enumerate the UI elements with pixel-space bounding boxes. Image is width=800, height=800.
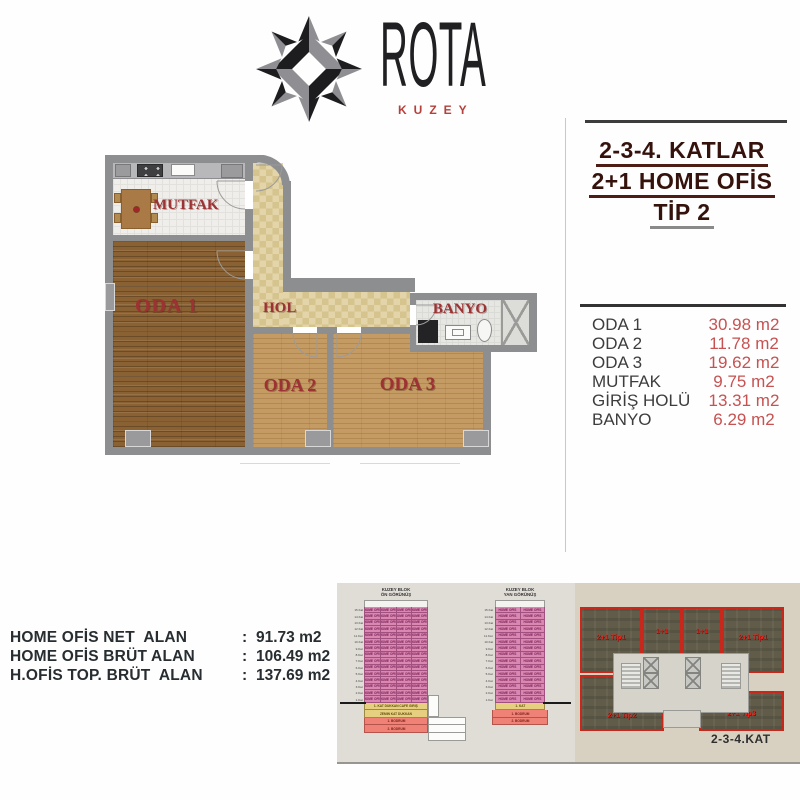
cell-label: HOME OFİS [412,666,427,669]
title-line-floors: 2-3-4. KATLAR [596,138,768,167]
room-label-oda3: ODA 3 [345,374,470,396]
elevation-floor-cell: HOME OFİS [412,633,427,638]
area-table-row: BANYO6.29 m2 [592,410,788,429]
elevation-floor-cell: HOME OFİS [521,626,545,631]
floor-level-text: 11.Kat [484,634,493,637]
key-plan-caption: 2-3-4.KAT [711,732,771,746]
cell-label: HOME OFİS [381,653,397,656]
front-elevation-title: KUZEY BLOK ÖN GÖRÜNÜŞ [356,587,436,601]
cell-label: HOME OFİS [412,646,427,649]
elevator-icon [685,673,701,689]
summary-row: HOME OFİS BRÜT ALAN:106.49 m2 [10,647,350,666]
elevation-floor-cell: HOME OFİS [521,613,545,618]
area-room-value: 30.98 m2 [700,315,788,335]
cell-label: HOME OFİS [523,678,541,681]
area-room-label: ODA 1 [592,315,700,335]
cell-label: HOME OFİS [499,621,517,624]
elevation-floor-cell: HOME OFİS [381,633,397,638]
cell-label: HOME OFİS [365,646,381,649]
cell-label: HOME OFİS [381,627,397,630]
cell-label: HOME OFİS [397,685,413,688]
floor-level-text: 5.Kat [486,673,493,676]
elevation-panel: KUZEY BLOK ÖN GÖRÜNÜŞ KUZEY BLOK YAN GÖR… [337,583,575,764]
cell-label: HOME OFİS [381,659,397,662]
cell-label: HOME OFİS [412,685,427,688]
cell-label: HOME OFİS [381,666,397,669]
dimension-line [240,463,330,464]
page: ROTA KUZEY [0,0,800,800]
cell-label: HOME OFİS [523,691,541,694]
elevation-floor-cell: HOME OFİS [365,620,381,625]
cell-label: HOME OFİS [499,666,517,669]
elevation-floor-cell: HOME OFİS [365,690,381,695]
cell-label: HOME OFİS [523,608,541,611]
area-room-value: 9.75 m2 [700,372,788,392]
cell-label: HOME OFİS [523,653,541,656]
side-elevation-tower: HOME OFİSHOME OFİSHOME OFİSHOME OFİSHOME… [495,600,545,725]
elevation-floor-cell: HOME OFİS [412,613,427,618]
cell-label: HOME OFİS [499,634,517,637]
elevation-floor-cell: HOME OFİS [365,684,381,689]
cell-label: HOME OFİS [397,640,413,643]
cell-label: HOME OFİS [523,621,541,624]
floor-level-text: 6.Kat [356,666,363,669]
cell-label: HOME OFİS [499,608,517,611]
area-room-label: ODA 3 [592,353,700,373]
floor-level-text: 3.Kat [356,685,363,688]
stairs-icon [721,663,741,689]
elevation-floor-cell: HOME OFİS [496,620,521,625]
elevation-floor-cell: HOME OFİS [365,696,381,701]
cell-label: HOME OFİS [523,646,541,649]
title-line-variant: TİP 2 [650,200,713,229]
elevation-floor-cell: HOME OFİS [397,658,413,663]
cell-label: HOME OFİS [365,653,381,656]
elevation-floor-cell: HOME OFİS [496,645,521,650]
cell-label: HOME OFİS [381,614,397,617]
elevation-floor-cell: HOME OFİS [381,671,397,676]
cell-label: HOME OFİS [381,685,397,688]
elevation-floor-cell: HOME OFİS [365,607,381,612]
cell-label: HOME OFİS [523,634,541,637]
elevation-floor-cell: HOME OFİS [412,645,427,650]
summary-value: 91.73 m2 [256,629,322,647]
cell-label: HOME OFİS [412,691,427,694]
cell-label: HOME OFİS [365,614,381,617]
elevation-floor-cell: HOME OFİS [521,658,545,663]
room-label-hol: HOL [263,300,296,317]
elevation-base-row: 1. KAT [495,703,545,711]
cell-label: HOME OFİS [365,608,381,611]
elevation-floor-cell: HOME OFİS [397,639,413,644]
elevation-floor-cell: HOME OFİS [365,671,381,676]
elevation-floor-cell: HOME OFİS [365,633,381,638]
cell-label: HOME OFİS [499,659,517,662]
floor-level-text: 14.Kat [354,615,363,618]
elevation-floor-cell: HOME OFİS [381,696,397,701]
floor-level-text: 10.Kat [354,641,363,644]
summary-label: HOME OFİS BRÜT ALAN [10,648,242,666]
floor-level-text: 10.Kat [484,641,493,644]
area-table-row: ODA 319.62 m2 [592,353,788,372]
elevation-floor-cell: HOME OFİS [412,658,427,663]
title-block: 2-3-4. KATLAR 2+1 HOME OFİS TİP 2 [568,138,796,231]
area-table-row: MUTFAK9.75 m2 [592,372,788,391]
elevation-floor-cell: HOME OFİS [397,696,413,701]
base-row-label: 1. BODRUM [511,712,529,715]
cell-label: HOME OFİS [412,614,427,617]
room-label-mutfak: MUTFAK [153,197,219,214]
elevation-floor-cell: HOME OFİS [496,633,521,638]
cell-label: HOME OFİS [523,666,541,669]
cell-label: HOME OFİS [381,646,397,649]
elevation-floor-cell: HOME OFİS [412,665,427,670]
base-row-label: 2. BODRUM [387,727,405,730]
elevation-floor-cell: HOME OFİS [365,613,381,618]
elevation-floor-cell: HOME OFİS [412,677,427,682]
ground-line-front [340,702,366,704]
cell-label: HOME OFİS [397,678,413,681]
floor-level-text: 4.Kat [356,679,363,682]
elevation-floor-cell: HOME OFİS [397,607,413,612]
elevation-floor-cell: HOME OFİS [412,639,427,644]
elevation-floor-cell: HOME OFİS [496,607,521,612]
elevation-floor-cell: HOME OFİS [496,658,521,663]
area-table: ODA 130.98 m2ODA 211.78 m2ODA 319.62 m2M… [592,315,788,429]
elevation-floor-cell: HOME OFİS [365,658,381,663]
elevation-floor-cell: HOME OFİS [521,645,545,650]
side-floor-labels: 15.Kat14.Kat13.Kat12.Kat11.Kat10.Kat9.Ka… [469,607,493,703]
elevation-floor-cell: HOME OFİS [412,684,427,689]
elevation-floor-cell: HOME OFİS [496,639,521,644]
base-row-label: 1. BODRUM [387,720,405,723]
area-table-row: ODA 211.78 m2 [592,334,788,353]
elevation-floor-cell: HOME OFİS [397,665,413,670]
elevation-floor-cell: HOME OFİS [397,677,413,682]
elevation-floor-cell: HOME OFİS [521,690,545,695]
cell-label: HOME OFİS [523,614,541,617]
elevation-floor-cell: HOME OFİS [381,645,397,650]
brand-subtitle: KUZEY [398,103,474,117]
front-step [428,695,439,717]
elevation-floor-cell: HOME OFİS [381,677,397,682]
elevation-floor-cell: HOME OFİS [412,671,427,676]
elevation-floor-cell: HOME OFİS [397,633,413,638]
elevation-floor-cell: HOME OFİS [397,652,413,657]
floor-level-text: 2.Kat [356,692,363,695]
elevation-floor-cell: HOME OFİS [496,652,521,657]
floor-level-text: 8.Kat [486,653,493,656]
elevation-floor-cell: HOME OFİS [397,620,413,625]
cell-label: HOME OFİS [365,634,381,637]
elevation-base-row: 1. BODRUM [492,710,548,718]
cell-label: HOME OFİS [365,685,381,688]
elevation-floor-cell: HOME OFİS [496,690,521,695]
elevation-floor-cell: HOME OFİS [496,684,521,689]
floor-level-label: 1.Kat [469,696,493,702]
room-label-oda2: ODA 2 [253,375,327,396]
elevation-floor-cell: HOME OFİS [381,639,397,644]
cell-label: HOME OFİS [499,672,517,675]
cell-label: HOME OFİS [499,691,517,694]
floor-level-text: 15.Kat [354,609,363,612]
lobby-protrusion [663,710,701,728]
area-room-label: GİRİŞ HOLÜ [592,391,700,411]
cell-label: HOME OFİS [499,685,517,688]
ground-line-side [543,702,571,704]
summary-label: H.OFİS TOP. BRÜT ALAN [10,667,242,685]
area-summary: HOME OFİS NET ALAN:91.73 m2HOME OFİS BRÜ… [10,628,350,685]
cell-label: HOME OFİS [397,608,413,611]
summary-row: H.OFİS TOP. BRÜT ALAN:137.69 m2 [10,666,350,685]
elevation-floor-cell: HOME OFİS [521,607,545,612]
cell-label: HOME OFİS [397,698,413,701]
key-plan-panel: 2+1 Tip1 1+1 1+1 2+1 Tip1 2+1 Tip2 2+1 T… [575,583,800,764]
summary-colon: : [242,667,256,685]
area-room-label: BANYO [592,410,700,430]
cell-label: HOME OFİS [365,678,381,681]
title-line-type: 2+1 HOME OFİS [589,169,776,198]
cell-label: HOME OFİS [397,672,413,675]
elevation-floor-cell: HOME OFİS [365,645,381,650]
floor-level-text: 8.Kat [356,653,363,656]
summary-colon: : [242,648,256,666]
room-label-banyo: BANYO [420,301,500,318]
floor-level-text: 13.Kat [484,621,493,624]
elevation-floor-cell: HOME OFİS [496,665,521,670]
cell-label: HOME OFİS [381,678,397,681]
cell-label: HOME OFİS [397,659,413,662]
elevation-base-row: ZEMİN KAT DÜKKAN [364,710,428,718]
cell-label: HOME OFİS [397,691,413,694]
elevation-floor-cell: HOME OFİS [381,607,397,612]
cell-label: HOME OFİS [397,614,413,617]
area-room-value: 6.29 m2 [700,410,788,430]
front-elevation-tower: HOME OFİSHOME OFİSHOME OFİSHOME OFİSHOME… [364,600,428,733]
floor-level-text: 2.Kat [486,692,493,695]
elevation-floor-cell: HOME OFİS [412,690,427,695]
floor-level-text: 12.Kat [484,628,493,631]
front-subrows [428,717,466,741]
area-room-label: ODA 2 [592,334,700,354]
cell-label: HOME OFİS [381,691,397,694]
cell-label: HOME OFİS [397,653,413,656]
area-room-value: 13.31 m2 [700,391,788,411]
elevation-floor-cell: HOME OFİS [496,626,521,631]
summary-value: 137.69 m2 [256,667,330,685]
cell-label: HOME OFİS [499,627,517,630]
base-row-label: 1. KAT DÜKKAN CAFE GİRİŞ [374,705,418,708]
floor-level-text: 11.Kat [354,634,363,637]
cell-label: HOME OFİS [365,627,381,630]
elevation-floor-cell: HOME OFİS [412,626,427,631]
floor-level-text: 1.Kat [356,698,363,701]
cell-label: HOME OFİS [523,640,541,643]
base-row-label: ZEMİN KAT DÜKKAN [380,712,412,715]
elevation-floor-cell: HOME OFİS [397,690,413,695]
elevation-floor-cell: HOME OFİS [381,620,397,625]
elevation-floor-cell: HOME OFİS [412,620,427,625]
elevation-floor-cell: HOME OFİS [397,645,413,650]
elevation-floor-cell: HOME OFİS [521,639,545,644]
elevation-base-row: 1. KAT DÜKKAN CAFE GİRİŞ [364,703,428,711]
elevation-floor-cell: HOME OFİS [381,690,397,695]
cell-label: HOME OFİS [412,672,427,675]
cell-label: HOME OFİS [412,627,427,630]
elevation-floor-cell: HOME OFİS [521,620,545,625]
cell-label: HOME OFİS [397,634,413,637]
unit-1-1-right: 1+1 [682,607,722,655]
elevation-floor-cell: HOME OFİS [412,607,427,612]
cell-label: HOME OFİS [381,672,397,675]
floor-level-text: 7.Kat [356,660,363,663]
cell-label: HOME OFİS [412,659,427,662]
cell-label: HOME OFİS [499,640,517,643]
cell-label: HOME OFİS [365,691,381,694]
summary-row: HOME OFİS NET ALAN:91.73 m2 [10,628,350,647]
floor-level-text: 12.Kat [354,628,363,631]
elevation-floor-cell: HOME OFİS [365,626,381,631]
base-row-label: 2. BODRUM [511,720,529,723]
base-row-label: 1. KAT [515,705,525,708]
cell-label: HOME OFİS [499,653,517,656]
cell-label: HOME OFİS [412,640,427,643]
tower-parapet [495,600,545,607]
area-room-value: 11.78 m2 [700,334,788,354]
unit-1-1-left: 1+1 [642,607,682,655]
elevation-floor-cell: HOME OFİS [521,665,545,670]
floor-level-text: 14.Kat [484,615,493,618]
cell-label: HOME OFİS [397,666,413,669]
elevation-base-row: 2. BODRUM [364,725,428,733]
cell-label: HOME OFİS [381,608,397,611]
cell-label: HOME OFİS [365,672,381,675]
elevation-floor-cell: HOME OFİS [521,677,545,682]
elevation-floor-cell: HOME OFİS [496,671,521,676]
elevation-floor-cell: HOME OFİS [381,658,397,663]
elevation-floor-cell: HOME OFİS [521,633,545,638]
cell-label: HOME OFİS [523,685,541,688]
cell-label: HOME OFİS [381,634,397,637]
elevation-floor-cell: HOME OFİS [365,652,381,657]
title-top-rule [585,120,787,123]
room-label-oda1: ODA 1 [135,295,198,318]
cell-label: HOME OFİS [523,698,541,701]
elevation-floor-cell: HOME OFİS [365,665,381,670]
cell-label: HOME OFİS [381,621,397,624]
cell-label: HOME OFİS [499,614,517,617]
cell-label: HOME OFİS [397,627,413,630]
elevation-floor-cell: HOME OFİS [381,613,397,618]
elevation-floor-cell: HOME OFİS [496,696,521,701]
elevation-floor-cell: HOME OFİS [521,671,545,676]
elevation-floor-cell: HOME OFİS [397,671,413,676]
cell-label: HOME OFİS [412,608,427,611]
cell-label: HOME OFİS [381,698,397,701]
compass-star-icon [253,16,365,122]
cell-label: HOME OFİS [412,698,427,701]
cell-label: HOME OFİS [397,646,413,649]
summary-value: 106.49 m2 [256,648,330,666]
floor-level-text: 15.Kat [484,609,493,612]
area-table-rule [580,304,786,307]
cell-label: HOME OFİS [499,698,517,701]
elevation-floor-cell: HOME OFİS [521,652,545,657]
floor-plan: MUTFAK ODA 1 HOL ODA 2 ODA 3 BANYO [105,155,537,460]
cell-label: HOME OFİS [365,659,381,662]
cell-label: HOME OFİS [397,621,413,624]
elevation-floor-cell: HOME OFİS [496,613,521,618]
cell-label: HOME OFİS [381,640,397,643]
area-room-value: 19.62 m2 [700,353,788,373]
dimension-line [360,463,460,464]
area-table-row: GİRİŞ HOLÜ13.31 m2 [592,391,788,410]
cell-label: HOME OFİS [365,640,381,643]
elevation-floor-cell: HOME OFİS [381,665,397,670]
cell-label: HOME OFİS [499,678,517,681]
cell-label: HOME OFİS [365,698,381,701]
stairs-icon [621,663,641,689]
elevation-floor-cell: HOME OFİS [496,677,521,682]
floor-level-text: 9.Kat [486,647,493,650]
elevation-floor-cell: HOME OFİS [521,684,545,689]
front-floor-labels: 15.Kat14.Kat13.Kat12.Kat11.Kat10.Kat9.Ka… [339,607,363,703]
cell-label: HOME OFİS [412,678,427,681]
floor-level-text: 1.Kat [486,698,493,701]
elevation-floor-cell: HOME OFİS [412,696,427,701]
elevation-floor-cell: HOME OFİS [381,684,397,689]
elevation-floor-cell: HOME OFİS [365,677,381,682]
floor-level-text: 7.Kat [486,660,493,663]
side-elevation-title: KUZEY BLOK YAN GÖRÜNÜŞ [480,587,560,601]
tower-parapet [364,600,428,607]
cell-label: HOME OFİS [523,672,541,675]
elevation-floor-cell: HOME OFİS [397,626,413,631]
floor-level-text: 3.Kat [486,685,493,688]
cell-label: HOME OFİS [499,646,517,649]
cell-label: HOME OFİS [412,621,427,624]
cell-label: HOME OFİS [412,634,427,637]
cell-label: HOME OFİS [365,666,381,669]
elevation-floor-cell: HOME OFİS [397,684,413,689]
cell-label: HOME OFİS [365,621,381,624]
floor-level-text: 5.Kat [356,673,363,676]
elevator-icon [643,657,659,673]
elevation-base-row: 2. BODRUM [492,718,548,726]
floor-level-text: 9.Kat [356,647,363,650]
brand-name: ROTA [380,9,486,101]
area-room-label: MUTFAK [592,372,700,392]
column-separator [565,118,566,552]
summary-label: HOME OFİS NET ALAN [10,629,242,647]
floor-level-text: 6.Kat [486,666,493,669]
elevator-icon [643,673,659,689]
elevation-base-row: 1. BODRUM [364,718,428,726]
summary-colon: : [242,629,256,647]
elevation-floor-cell: HOME OFİS [381,652,397,657]
floor-level-text: 4.Kat [486,679,493,682]
cell-label: HOME OFİS [412,653,427,656]
cell-label: HOME OFİS [523,659,541,662]
elevator-icon [685,657,701,673]
elevation-floor-cell: HOME OFİS [521,696,545,701]
cell-label: HOME OFİS [523,627,541,630]
elevation-floor-cell: HOME OFİS [412,652,427,657]
floor-level-text: 13.Kat [354,621,363,624]
area-table-row: ODA 130.98 m2 [592,315,788,334]
elevation-floor-cell: HOME OFİS [381,626,397,631]
elevation-floor-cell: HOME OFİS [365,639,381,644]
